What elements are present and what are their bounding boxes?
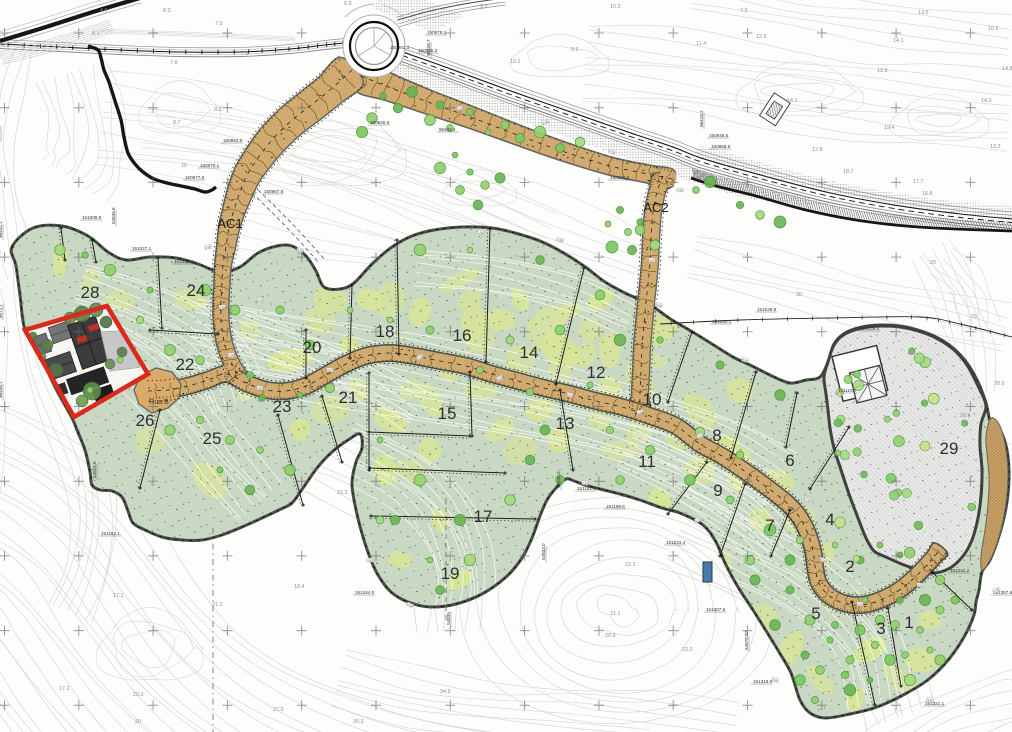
svg-text:54846.6: 54846.6 bbox=[111, 207, 116, 224]
svg-text:151027.1: 151027.1 bbox=[132, 246, 152, 251]
svg-text:96431.1: 96431.1 bbox=[0, 221, 3, 238]
svg-text:30.3: 30.3 bbox=[353, 719, 364, 725]
svg-text:10: 10 bbox=[181, 163, 187, 169]
svg-text:17.7: 17.7 bbox=[913, 179, 924, 185]
svg-text:11.4: 11.4 bbox=[696, 41, 706, 47]
svg-text:4.50: 4.50 bbox=[219, 305, 225, 309]
svg-text:17: 17 bbox=[474, 507, 493, 526]
svg-text:54878.97: 54878.97 bbox=[744, 630, 749, 650]
svg-text:151264.0: 151264.0 bbox=[355, 590, 375, 595]
svg-text:12.8: 12.8 bbox=[812, 147, 823, 153]
svg-text:13: 13 bbox=[556, 414, 575, 433]
svg-text:150966.6: 150966.6 bbox=[711, 144, 731, 149]
svg-text:9.6: 9.6 bbox=[571, 47, 579, 53]
svg-text:28: 28 bbox=[81, 283, 100, 302]
svg-text:4.50: 4.50 bbox=[327, 368, 334, 373]
svg-text:54835: 54835 bbox=[446, 612, 451, 625]
svg-text:4.50: 4.50 bbox=[697, 348, 704, 353]
svg-text:55030.0: 55030.0 bbox=[556, 471, 561, 488]
svg-text:21.3: 21.3 bbox=[337, 490, 348, 496]
svg-text:3: 3 bbox=[876, 619, 885, 638]
svg-text:13.2: 13.2 bbox=[990, 144, 1001, 150]
svg-text:150879.1: 150879.1 bbox=[427, 30, 447, 35]
svg-text:151049.9: 151049.9 bbox=[757, 307, 777, 312]
svg-text:21.1: 21.1 bbox=[610, 611, 621, 617]
svg-text:Rua B: Rua B bbox=[149, 399, 169, 406]
svg-text:151199.6: 151199.6 bbox=[606, 504, 625, 509]
svg-text:10.3: 10.3 bbox=[610, 4, 621, 10]
svg-text:151318.9: 151318.9 bbox=[753, 679, 773, 684]
svg-text:4.50: 4.50 bbox=[805, 498, 811, 502]
svg-text:14.3: 14.3 bbox=[981, 98, 992, 104]
svg-text:17.2: 17.2 bbox=[59, 686, 70, 692]
svg-text:25: 25 bbox=[203, 429, 222, 448]
svg-text:150940.5: 150940.5 bbox=[370, 120, 390, 125]
svg-text:9: 9 bbox=[713, 481, 722, 500]
svg-text:24: 24 bbox=[187, 281, 206, 300]
svg-text:9071.7: 9071.7 bbox=[0, 304, 3, 318]
svg-text:21.2: 21.2 bbox=[212, 602, 223, 608]
svg-text:22: 22 bbox=[176, 355, 195, 374]
svg-text:150981.4: 150981.4 bbox=[390, 45, 410, 50]
svg-text:13.5: 13.5 bbox=[918, 10, 929, 16]
svg-text:151182.6: 151182.6 bbox=[577, 486, 596, 491]
svg-text:18.7: 18.7 bbox=[843, 169, 854, 175]
svg-text:AC2: AC2 bbox=[643, 200, 668, 215]
svg-text:20: 20 bbox=[303, 338, 322, 357]
svg-text:15: 15 bbox=[438, 404, 457, 423]
svg-text:17.1: 17.1 bbox=[113, 593, 124, 599]
svg-text:7.5: 7.5 bbox=[215, 21, 223, 27]
svg-text:14.8: 14.8 bbox=[1002, 66, 1012, 72]
svg-text:4.50: 4.50 bbox=[582, 481, 589, 486]
svg-text:26: 26 bbox=[136, 411, 155, 430]
svg-text:8: 8 bbox=[712, 426, 721, 445]
svg-text:96416.2: 96416.2 bbox=[699, 110, 704, 127]
svg-text:20: 20 bbox=[930, 260, 936, 266]
svg-text:96446.1: 96446.1 bbox=[0, 381, 3, 398]
svg-text:151036.0: 151036.0 bbox=[860, 326, 880, 331]
svg-text:8.1: 8.1 bbox=[92, 31, 100, 37]
svg-text:23: 23 bbox=[273, 397, 292, 416]
svg-text:30: 30 bbox=[796, 292, 802, 298]
svg-text:5: 5 bbox=[811, 604, 820, 623]
svg-text:11: 11 bbox=[638, 452, 656, 471]
svg-text:14: 14 bbox=[520, 343, 539, 362]
svg-text:7: 7 bbox=[765, 516, 774, 535]
svg-text:18.4: 18.4 bbox=[294, 584, 305, 590]
svg-text:8.2: 8.2 bbox=[214, 107, 222, 113]
svg-text:16: 16 bbox=[453, 326, 472, 345]
svg-text:4.50: 4.50 bbox=[228, 353, 235, 358]
svg-text:151242.2: 151242.2 bbox=[950, 568, 970, 573]
svg-text:19: 19 bbox=[441, 564, 460, 583]
svg-text:151223.4: 151223.4 bbox=[666, 540, 686, 545]
svg-text:9.3: 9.3 bbox=[480, 4, 488, 10]
svg-text:22.3: 22.3 bbox=[682, 647, 693, 653]
svg-text:20: 20 bbox=[135, 719, 141, 725]
svg-text:2: 2 bbox=[845, 557, 854, 576]
svg-text:54833.0: 54833.0 bbox=[541, 543, 546, 560]
svg-text:6.9: 6.9 bbox=[344, 1, 352, 7]
svg-text:4.50: 4.50 bbox=[857, 602, 863, 606]
svg-text:4.6: 4.6 bbox=[100, 8, 108, 14]
svg-text:34.5: 34.5 bbox=[440, 689, 451, 695]
svg-text:28.9: 28.9 bbox=[994, 381, 1005, 387]
svg-text:7.3: 7.3 bbox=[740, 8, 748, 14]
svg-text:7.9: 7.9 bbox=[241, 51, 249, 57]
svg-text:18: 18 bbox=[376, 322, 395, 341]
svg-text:96438.7: 96438.7 bbox=[426, 39, 431, 56]
svg-text:150977.8: 150977.8 bbox=[185, 175, 205, 180]
svg-text:150954.6: 150954.6 bbox=[223, 138, 243, 143]
svg-text:14.1: 14.1 bbox=[893, 38, 904, 44]
svg-text:151050.1: 151050.1 bbox=[712, 319, 732, 324]
svg-text:16.8: 16.8 bbox=[922, 191, 933, 197]
svg-text:20.3: 20.3 bbox=[133, 692, 144, 698]
svg-text:151182.1: 151182.1 bbox=[101, 531, 120, 536]
svg-text:96441.2: 96441.2 bbox=[439, 127, 456, 132]
svg-text:150946.6: 150946.6 bbox=[709, 133, 729, 138]
svg-text:29: 29 bbox=[940, 439, 959, 458]
svg-text:19.4: 19.4 bbox=[884, 125, 895, 131]
svg-text:8.3: 8.3 bbox=[163, 8, 171, 14]
svg-text:54815.6: 54815.6 bbox=[92, 461, 97, 478]
svg-text:22.2: 22.2 bbox=[625, 562, 636, 568]
svg-text:150970.1: 150970.1 bbox=[200, 163, 220, 168]
svg-text:1: 1 bbox=[904, 613, 913, 632]
svg-text:6: 6 bbox=[785, 451, 794, 470]
svg-text:26.6: 26.6 bbox=[960, 413, 971, 419]
svg-text:4.50: 4.50 bbox=[649, 258, 656, 263]
svg-text:10.1: 10.1 bbox=[510, 59, 521, 65]
svg-text:151119.7: 151119.7 bbox=[838, 388, 857, 393]
svg-text:7.8: 7.8 bbox=[170, 60, 178, 66]
svg-text:21: 21 bbox=[339, 388, 358, 407]
svg-text:12: 12 bbox=[587, 363, 606, 382]
svg-text:4.50: 4.50 bbox=[257, 386, 264, 391]
svg-text:8.7: 8.7 bbox=[173, 120, 181, 126]
svg-text:4.50: 4.50 bbox=[367, 558, 373, 562]
svg-text:20.9: 20.9 bbox=[605, 633, 616, 639]
svg-text:AC1: AC1 bbox=[217, 216, 242, 231]
svg-text:14.1: 14.1 bbox=[787, 98, 798, 104]
svg-text:151008.8: 151008.8 bbox=[82, 215, 102, 220]
svg-text:4.50: 4.50 bbox=[677, 188, 683, 192]
svg-text:12.8: 12.8 bbox=[877, 68, 888, 74]
svg-text:150928.5: 150928.5 bbox=[610, 175, 630, 180]
svg-text:25: 25 bbox=[971, 314, 977, 320]
svg-text:4: 4 bbox=[825, 510, 834, 529]
svg-text:150967.8: 150967.8 bbox=[264, 189, 284, 194]
svg-text:151038.4: 151038.4 bbox=[174, 259, 194, 264]
svg-text:12.5: 12.5 bbox=[756, 34, 767, 40]
svg-text:151307.6: 151307.6 bbox=[706, 607, 726, 612]
svg-text:10.2: 10.2 bbox=[988, 26, 999, 32]
svg-text:27.2: 27.2 bbox=[273, 707, 284, 713]
svg-text:10: 10 bbox=[643, 390, 662, 409]
